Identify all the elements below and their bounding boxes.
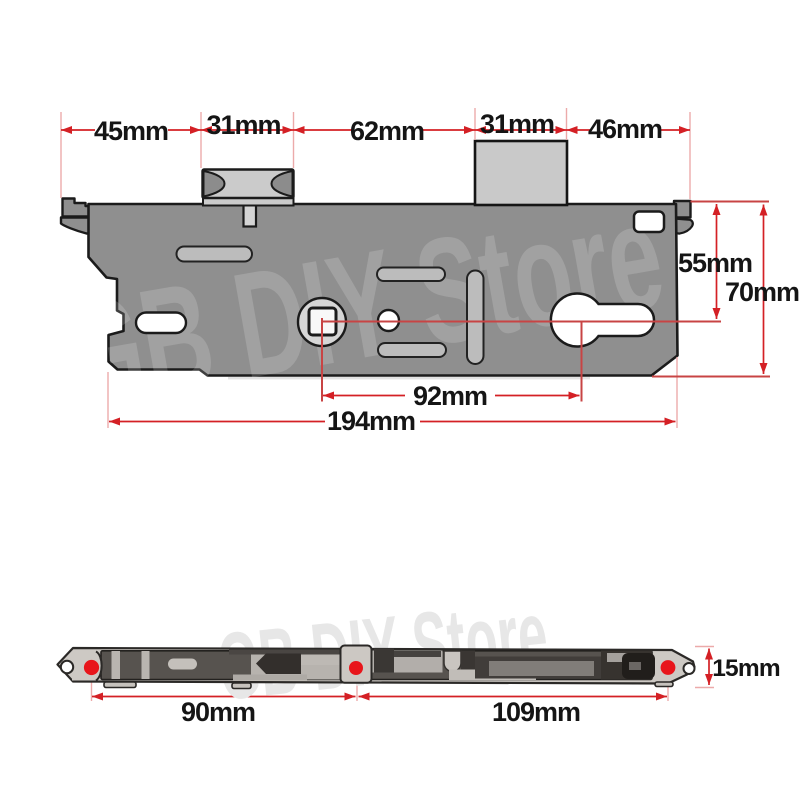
svg-text:194mm: 194mm [327, 406, 415, 436]
svg-text:62mm: 62mm [350, 116, 424, 146]
svg-text:109mm: 109mm [492, 697, 580, 727]
svg-text:31mm: 31mm [480, 109, 554, 139]
svg-text:31mm: 31mm [206, 110, 280, 140]
svg-text:55mm: 55mm [678, 248, 752, 278]
svg-text:45mm: 45mm [94, 116, 168, 146]
svg-text:70mm: 70mm [725, 277, 799, 307]
svg-text:92mm: 92mm [413, 381, 487, 411]
svg-text:46mm: 46mm [588, 114, 662, 144]
svg-text:15mm: 15mm [712, 655, 780, 682]
svg-text:90mm: 90mm [181, 697, 255, 727]
